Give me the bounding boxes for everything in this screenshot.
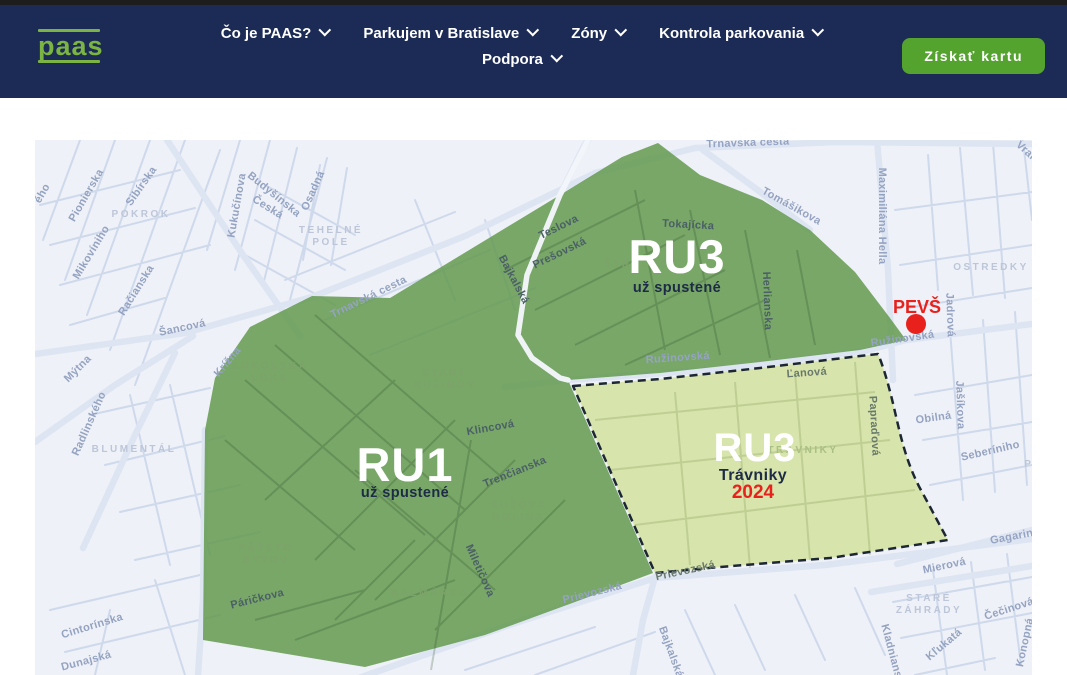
chevron-down-icon — [614, 24, 627, 37]
area-label: STARÉ — [906, 591, 952, 604]
zone-status-ru1: už spustené — [361, 485, 449, 501]
area-label: RUŽOVÁ — [490, 498, 547, 511]
map-svg: PionierskaSibírskaMikovínihoRačianskaKuk… — [35, 140, 1032, 675]
area-label: KALMÁRKA — [391, 586, 469, 599]
area-label: BYTOV — [243, 555, 290, 566]
site-header: paas Čo je PAAS? Parkujem v Bratislave Z… — [0, 5, 1067, 98]
nav-label: Kontrola parkovania — [659, 25, 804, 42]
area-label: DOLINA — [492, 512, 545, 523]
area-label: POŠEŇ — [1024, 457, 1032, 470]
street-label: Jadrová — [943, 293, 957, 338]
zone-label-ru3: RU3 — [628, 230, 725, 283]
area-label: PÄŤSTO — [238, 541, 293, 554]
nav-row-2: Podpora — [482, 51, 561, 68]
nav-label: Podpora — [482, 51, 543, 68]
zone-status-ru3: už spustené — [633, 280, 721, 296]
nav-row-1: Čo je PAAS? Parkujem v Bratislave Zóny K… — [221, 25, 822, 42]
area-label: LÚKA — [251, 371, 289, 384]
street-label: Herlianska — [760, 271, 774, 331]
nav-item-co-je-paas[interactable]: Čo je PAAS? — [221, 25, 330, 42]
area-label: RUŽINOV — [414, 378, 477, 391]
chevron-down-icon — [318, 24, 331, 37]
page: paas Čo je PAAS? Parkujem v Bratislave Z… — [0, 0, 1067, 675]
paas-logo[interactable]: paas — [38, 29, 100, 63]
street-label: Maximiliána Hella — [876, 168, 888, 265]
logo-text: paas — [38, 32, 100, 60]
zone-label-ru3-travniky: RU3 — [713, 426, 796, 470]
get-card-button[interactable]: Získať kartu — [902, 38, 1045, 74]
nav-item-podpora[interactable]: Podpora — [482, 51, 561, 68]
nav-item-zony[interactable]: Zóny — [571, 25, 625, 42]
nav-item-kontrola-parkovania[interactable]: Kontrola parkovania — [659, 25, 822, 42]
pevs-marker-dot — [906, 314, 926, 334]
main-nav: Čo je PAAS? Parkujem v Bratislave Zóny K… — [221, 25, 822, 68]
area-label: OSTREDKY — [953, 262, 1029, 273]
nav-item-parkujem-v-bratislave[interactable]: Parkujem v Bratislave — [363, 25, 537, 42]
area-label: TEHELNÉ — [299, 223, 363, 236]
nav-label: Parkujem v Bratislave — [363, 25, 519, 42]
zone-year-2024: 2024 — [732, 482, 775, 503]
zone-map: PionierskaSibírskaMikovínihoRačianskaKuk… — [35, 140, 1032, 675]
area-label: POLE — [312, 237, 349, 248]
area-label: POKROK — [112, 209, 171, 220]
street-label: Jašíkova — [953, 380, 967, 430]
chevron-down-icon — [550, 50, 563, 63]
area-label: ZÁHRADY — [896, 603, 962, 616]
nav-label: Čo je PAAS? — [221, 25, 312, 42]
chevron-down-icon — [526, 24, 539, 37]
area-label: SOKOLSKÁ — [232, 359, 309, 372]
zone-label-ru1: RU1 — [356, 438, 453, 491]
area-label: STARÝ — [422, 366, 468, 379]
area-label: BLUMENTÁL — [92, 442, 177, 455]
nav-label: Zóny — [571, 25, 607, 42]
pevs-label: PEVŠ — [893, 296, 941, 317]
chevron-down-icon — [811, 24, 824, 37]
